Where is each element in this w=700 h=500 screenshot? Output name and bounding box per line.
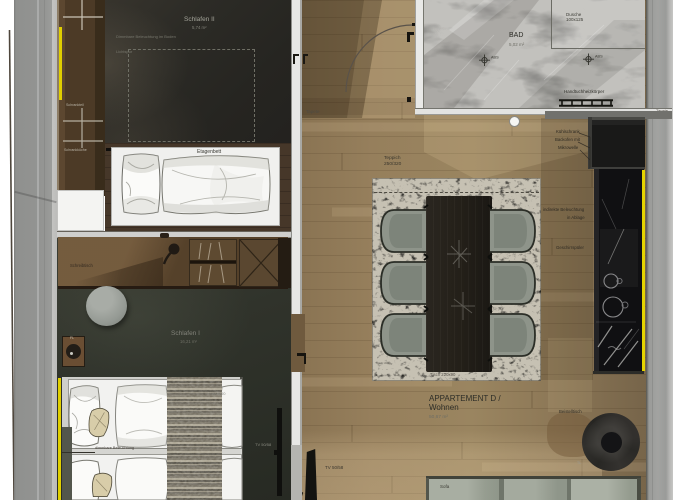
svg-text:ABS: ABS <box>491 56 499 60</box>
svg-text:ABS: ABS <box>595 55 603 59</box>
